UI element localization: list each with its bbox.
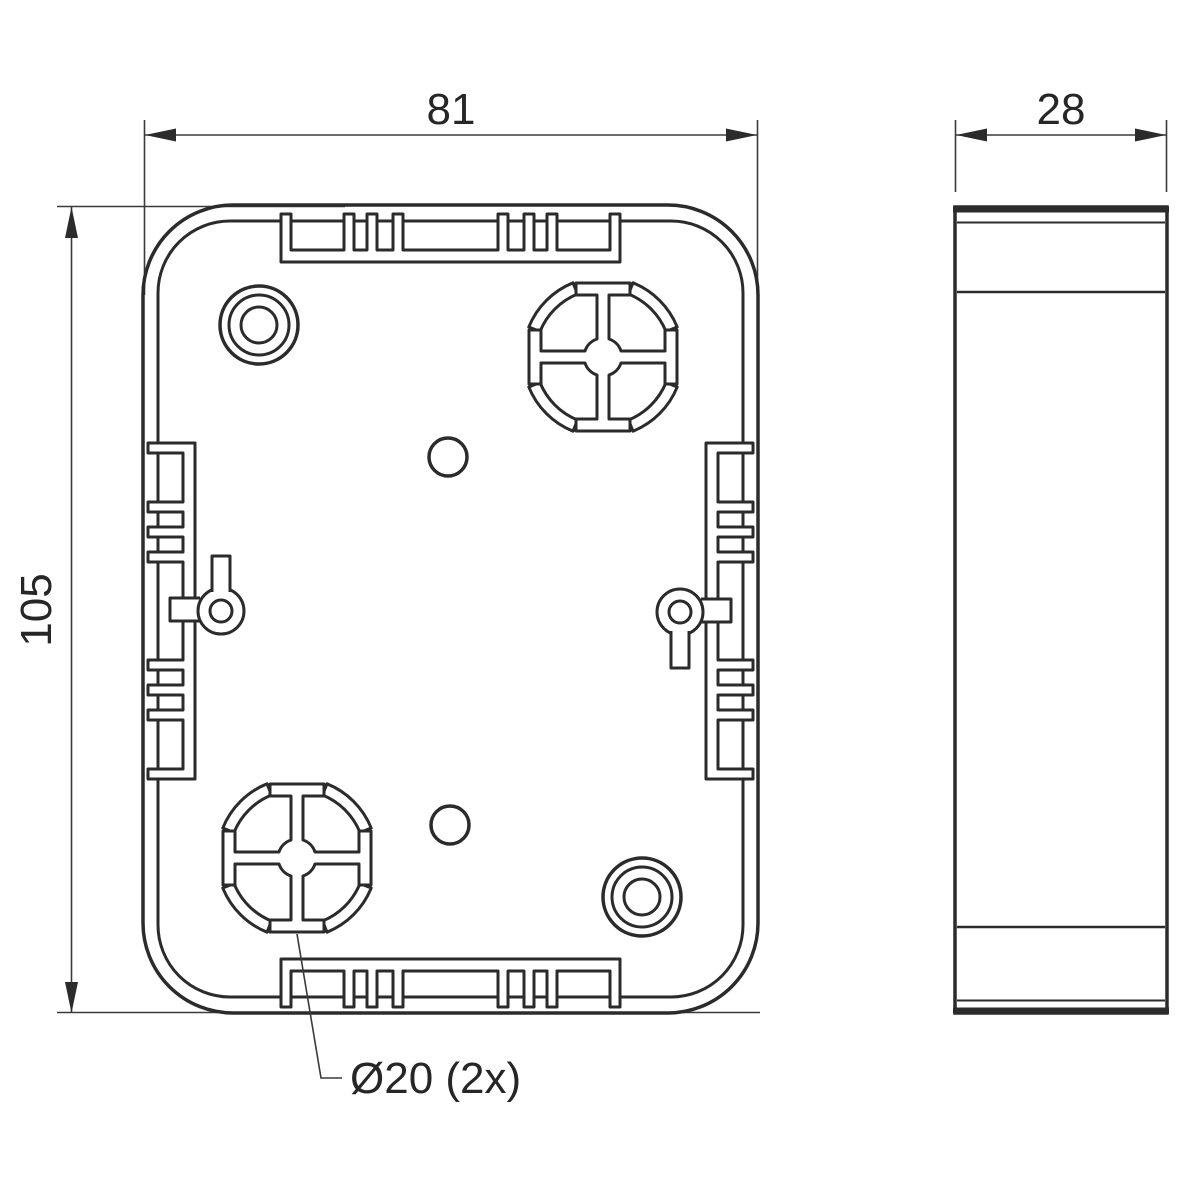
lug-mount-tab bbox=[701, 599, 731, 622]
left-cable-lug bbox=[170, 556, 244, 634]
arrowhead-bottom bbox=[65, 982, 78, 1013]
side-view bbox=[953, 207, 1169, 1013]
dimension-depth: 28 bbox=[956, 85, 1167, 192]
knockout-bottom-left bbox=[223, 784, 371, 932]
lug-ring-outer bbox=[198, 588, 244, 634]
arrowhead-right bbox=[726, 129, 757, 142]
fixing-hole-bottom bbox=[431, 806, 469, 844]
arrowhead-left bbox=[956, 129, 987, 142]
knockout-top-right bbox=[529, 283, 677, 431]
boss-hole bbox=[624, 879, 660, 915]
technical-drawing: 81 105 28 bbox=[0, 0, 1200, 1200]
lug-stem bbox=[212, 556, 230, 592]
lug-mount-tab bbox=[170, 598, 200, 621]
bottom-vent-comb bbox=[281, 959, 620, 1007]
side-outline bbox=[955, 207, 1167, 1013]
knockout-callout-label: Ø20 (2x) bbox=[350, 1054, 521, 1103]
boss-ring-middle bbox=[229, 295, 289, 355]
boss-ring-outer bbox=[603, 858, 681, 936]
lug-ring-outer bbox=[657, 589, 703, 635]
dimension-height: 105 bbox=[12, 207, 760, 1014]
front-view bbox=[143, 205, 758, 1013]
right-cable-lug bbox=[657, 589, 731, 668]
arrowhead-left bbox=[145, 129, 176, 142]
screw-boss-top-left bbox=[220, 286, 298, 364]
arrowhead-right bbox=[1135, 129, 1166, 142]
screw-boss-bottom-right bbox=[603, 858, 681, 936]
height-dimension-value: 105 bbox=[12, 573, 61, 646]
depth-dimension-value: 28 bbox=[1037, 85, 1086, 134]
drawing-sheet: 81 105 28 bbox=[0, 0, 1200, 1200]
fixing-hole-top bbox=[429, 438, 467, 476]
arrowhead-top bbox=[65, 207, 78, 238]
boss-ring-middle bbox=[612, 867, 672, 927]
boss-ring-outer bbox=[220, 286, 298, 364]
leader-line bbox=[297, 934, 342, 1078]
boss-hole bbox=[241, 307, 277, 343]
lug-stem bbox=[671, 631, 689, 668]
width-dimension-value: 81 bbox=[427, 85, 476, 134]
